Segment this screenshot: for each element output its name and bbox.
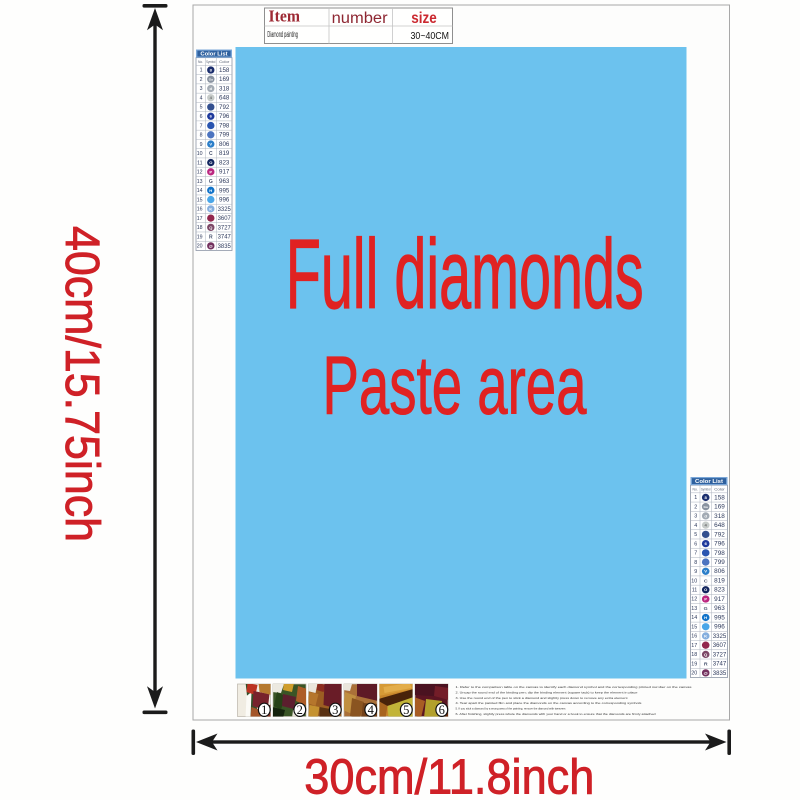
- svg-text:Item: Item: [269, 7, 301, 26]
- svg-text:6: 6: [439, 703, 445, 717]
- svg-text:4. Tear apart the painted fil: 4. Tear apart the painted film and place…: [456, 701, 643, 705]
- svg-text:size: size: [411, 10, 437, 27]
- svg-text:30cm/11.8inch: 30cm/11.8inch: [304, 751, 594, 800]
- svg-text:2: 2: [297, 703, 303, 717]
- svg-text:3. Use the round end of the p: 3. Use the round end of the pen to stick…: [456, 696, 628, 700]
- svg-text:3: 3: [332, 703, 338, 717]
- svg-text:30~40CM: 30~40CM: [411, 31, 450, 42]
- svg-text:4: 4: [368, 703, 375, 717]
- svg-text:1. Refer to the comparison ta: 1. Refer to the comparison table on the …: [456, 685, 693, 689]
- svg-text:2. Uncap the round end of the: 2. Uncap the round end of the binding pe…: [456, 691, 638, 695]
- svg-text:5. If you stick a diamond by: 5. If you stick a diamond by a wrong are…: [456, 707, 566, 711]
- svg-text:Diamond painting: Diamond painting: [267, 30, 298, 39]
- svg-text:Full diamonds: Full diamonds: [286, 219, 644, 329]
- svg-text:40cm/15.75inch: 40cm/15.75inch: [55, 226, 108, 542]
- svg-text:1: 1: [261, 703, 267, 717]
- svg-text:5: 5: [403, 703, 409, 717]
- svg-text:number: number: [332, 10, 388, 27]
- svg-text:6. After finishing, slightly: 6. After finishing, slightly press whole…: [456, 712, 656, 716]
- svg-text:Paste area: Paste area: [323, 339, 588, 432]
